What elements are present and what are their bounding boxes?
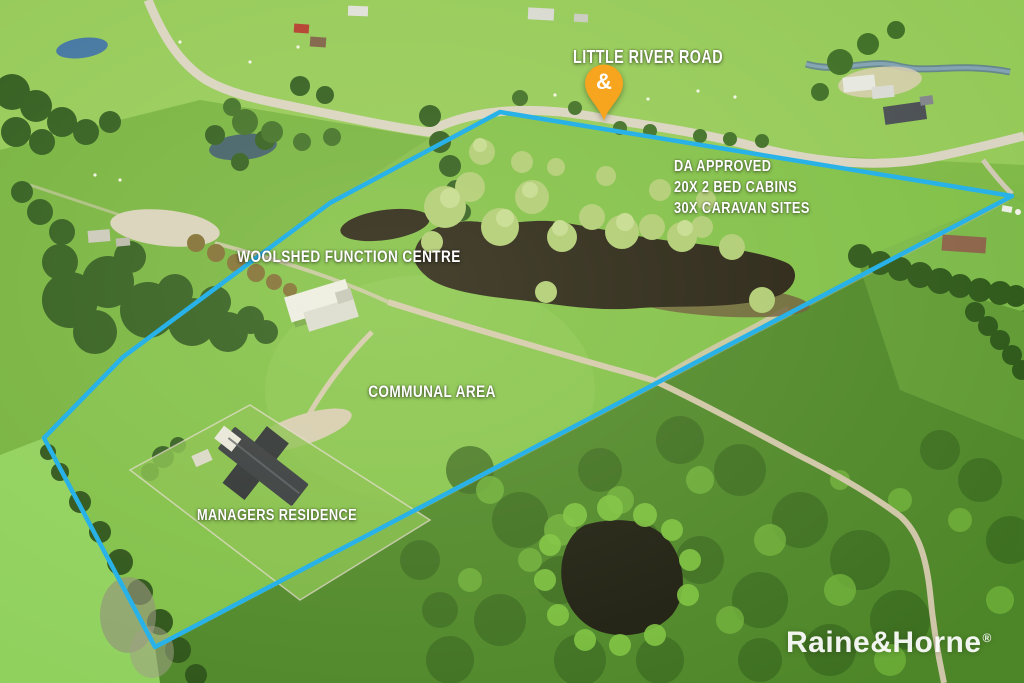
pin-ampersand: & [584,69,624,95]
managers-residence-label: MANAGERS RESIDENCE [197,507,357,525]
da-line-2: 20X 2 BED CABINS [674,177,810,198]
da-line-1: DA APPROVED [674,156,810,177]
brand-watermark: Raine&Horne® [786,626,992,660]
da-approved-label: DA APPROVED 20X 2 BED CABINS 30X CARAVAN… [674,156,810,219]
registered-mark: ® [983,631,992,645]
communal-area-label: COMMUNAL AREA [368,382,496,402]
da-line-3: 30X CARAVAN SITES [674,198,810,219]
location-pin-icon: & [584,64,624,122]
aerial-scene [0,0,1024,683]
brand-watermark-text: Raine&Horne [786,626,982,659]
woolshed-label: WOOLSHED FUNCTION CENTRE [237,247,460,267]
aerial-photo: LITTLE RIVER ROAD & DA APPROVED 20X 2 BE… [0,0,1024,683]
